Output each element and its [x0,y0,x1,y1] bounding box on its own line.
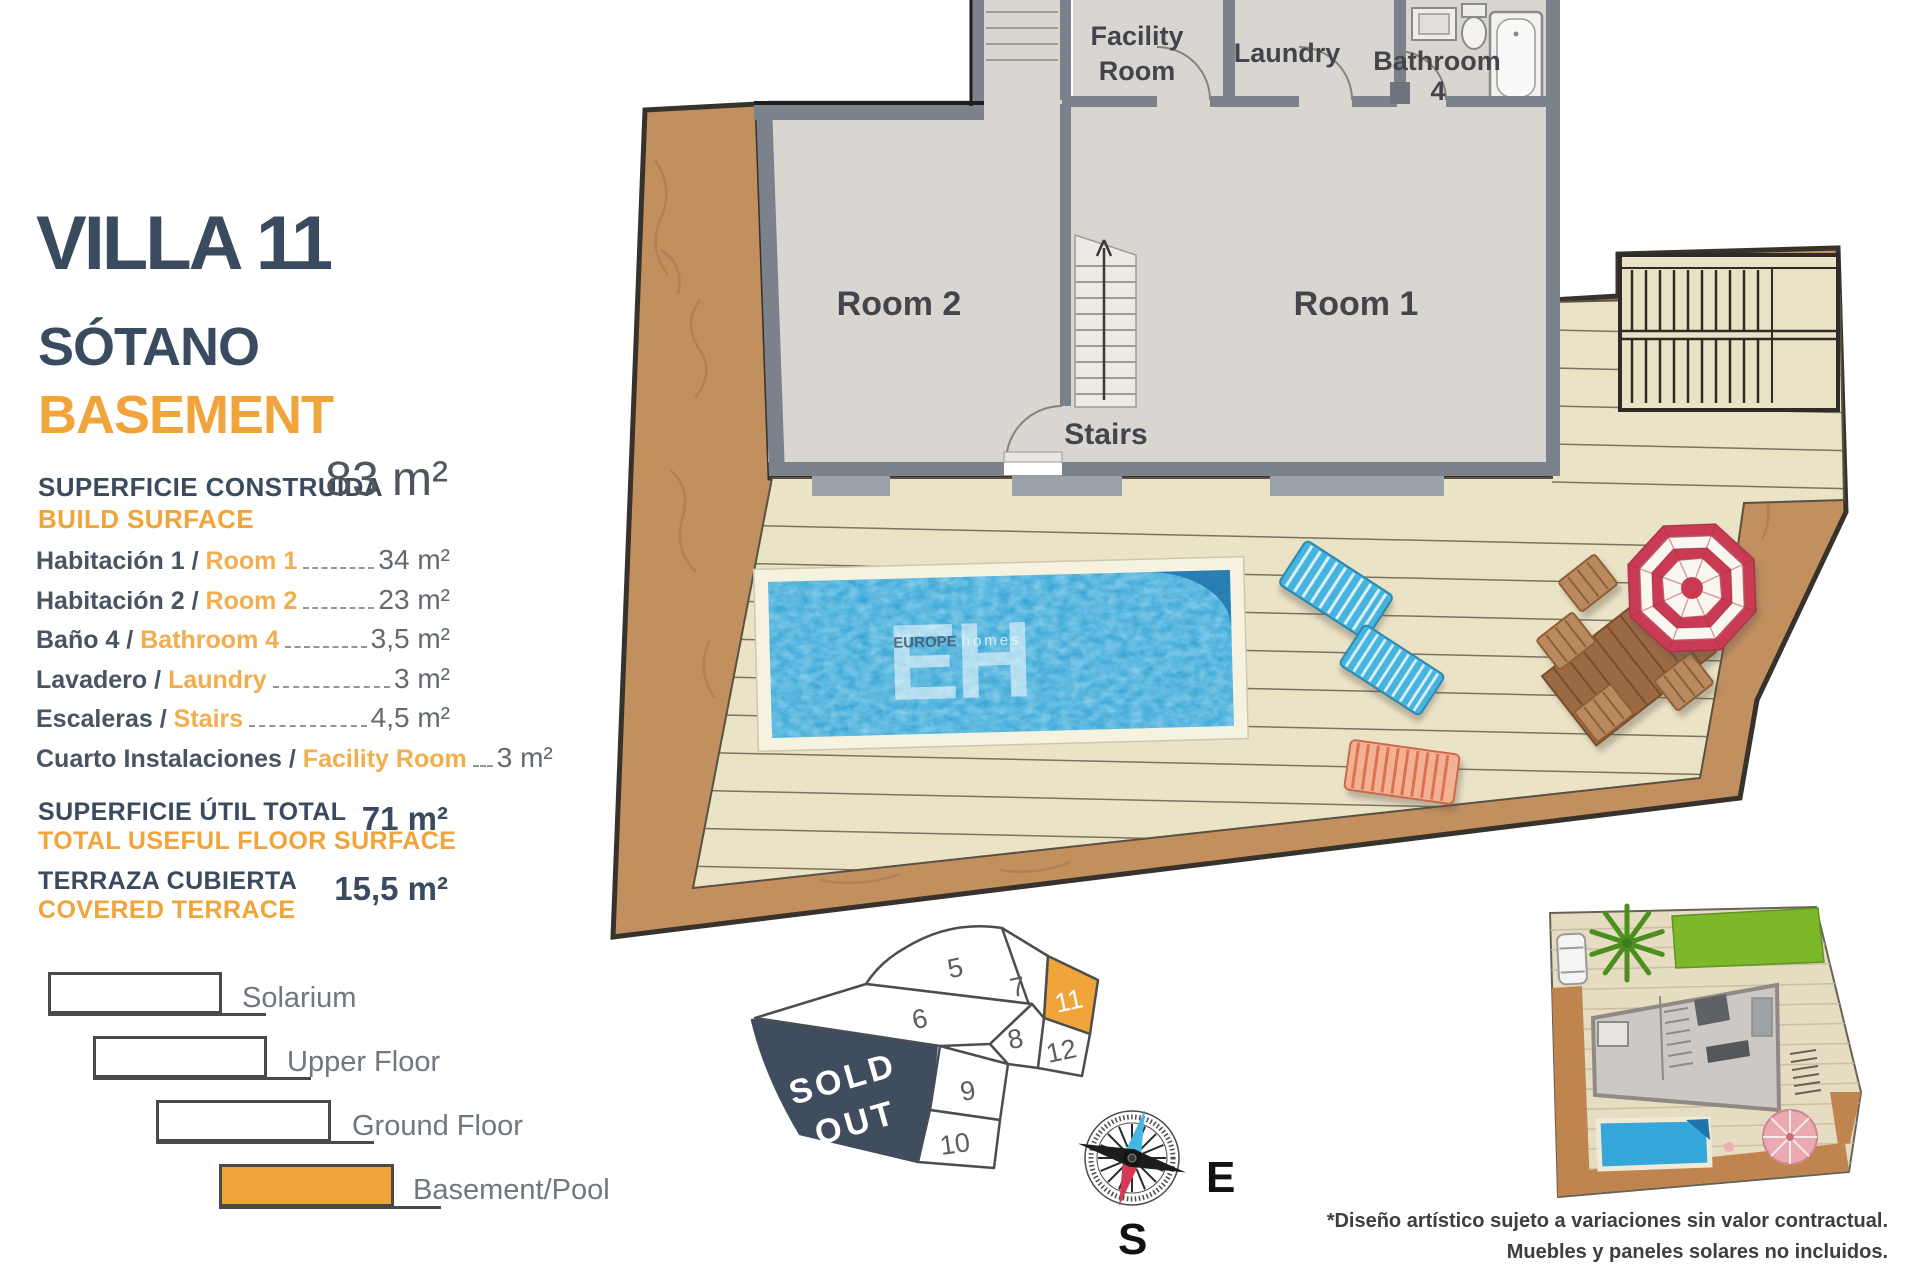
dotted-leader [473,765,493,767]
legend-bar-solarium [48,972,222,1014]
watermark-brand-light: homes [961,631,1021,650]
row-label-en: Stairs [174,707,243,732]
room-label-room2: Room 2 [837,285,962,323]
building: Room 2 Room 1 Stairs Facility Room Laund… [754,0,1560,496]
room-label-facility-2: Room [1099,56,1176,86]
watermark-brand-bold: EUROPE [893,633,957,652]
legend-underline [48,1013,266,1016]
room-label-bathroom-1: Bathroom [1373,46,1501,76]
inset-pool-float [1724,1142,1734,1152]
compass-south-label: S [1118,1215,1147,1264]
row-value: 3,5 m² [371,625,450,653]
row-label-es: Habitación 2 / [36,589,199,614]
internal-stairs [1075,235,1136,407]
table-row: Lavadero / Laundry 3 m² [36,665,450,705]
legend-label-basement-pool: Basement/Pool [413,1174,610,1207]
disclaimer: *Diseño artístico sujeto a variaciones s… [1327,1206,1888,1268]
row-value: 3 m² [394,665,450,693]
watermark: EH EUROPE homes [886,598,1031,723]
subtitle-spanish: SÓTANO [38,320,259,374]
row-label-en: Laundry [168,668,267,693]
compass-east-label: E [1206,1153,1235,1202]
row-label-es: Baño 4 / [36,628,133,653]
disclaimer-line2: Muebles y paneles solares no incluidos. [1327,1237,1888,1268]
dotted-leader [285,646,366,648]
table-row: Habitación 1 / Room 1 34 m² [36,546,450,586]
watermark-initials: EH [886,598,1031,723]
terrace-value: 15,5 m² [230,872,448,905]
row-label-en: Facility Room [303,747,467,772]
row-label-en: Room 2 [206,589,298,614]
legend-bar-basement-pool [219,1164,394,1207]
surface-table: Habitación 1 / Room 1 34 m² Habitación 2… [36,546,450,783]
row-label-es: Lavadero / [36,668,161,693]
row-value: 4,5 m² [371,704,450,732]
legend-underline [219,1206,441,1209]
villa-overview-inset [1548,906,1865,1197]
legend-label-solarium: Solarium [242,982,356,1015]
build-surface-label-en: BUILD SURFACE [38,506,254,532]
room-label-room1: Room 1 [1294,285,1419,323]
page-title: VILLA 11 [36,206,330,282]
build-surface-value: 83 m² [230,456,448,504]
useful-surface-value: 71 m² [230,802,448,835]
room-label-facility-1: Facility [1090,21,1183,51]
table-row: Cuarto Instalaciones / Facility Room 3 m… [36,744,450,784]
dotted-leader [273,686,390,688]
room-label-laundry: Laundry [1234,38,1341,68]
table-row: Habitación 2 / Room 2 23 m² [36,586,450,626]
row-label-en: Bathroom 4 [140,628,279,653]
row-value: 23 m² [378,586,450,614]
legend-underline [156,1141,374,1144]
compass-icon: E S [1065,1095,1235,1264]
table-row: Escaleras / Stairs 4,5 m² [36,704,450,744]
row-label-en: Room 1 [206,549,298,574]
toilet-icon [1462,4,1486,17]
row-value: 34 m² [378,546,450,574]
legend-underline [93,1077,311,1080]
room-label-bathroom-2: 4 [1430,76,1445,106]
swimming-pool: EH EUROPE homes [754,557,1249,752]
dotted-leader [249,725,366,727]
inset-umbrella [1763,1110,1817,1164]
row-label-es: Habitación 1 / [36,549,199,574]
inset-car [1557,933,1588,984]
table-row: Baño 4 / Bathroom 4 3,5 m² [36,625,450,665]
legend-label-upper-floor: Upper Floor [287,1046,440,1079]
floorplan-page: { "header": { "title": "VILLA 11", "subt… [0,0,1920,1280]
row-label-es: Escaleras / [36,707,167,732]
parcel-number-10: 10 [938,1127,972,1161]
row-label-es: Cuarto Instalaciones / [36,747,296,772]
legend-bar-ground-floor [156,1100,331,1142]
legend-bar-upper-floor [93,1036,267,1078]
legend-label-ground-floor: Ground Floor [352,1110,523,1143]
subtitle-english: BASEMENT [38,388,333,442]
dotted-leader [303,607,374,609]
disclaimer-line1: *Diseño artístico sujeto a variaciones s… [1327,1206,1888,1237]
room-label-stairs: Stairs [1064,418,1147,451]
row-value: 3 m² [497,744,553,772]
inset-lawn [1672,908,1824,968]
dotted-leader [303,567,374,569]
exterior-stairs [1620,255,1838,410]
parcel-number-12: 12 [1044,1033,1080,1069]
